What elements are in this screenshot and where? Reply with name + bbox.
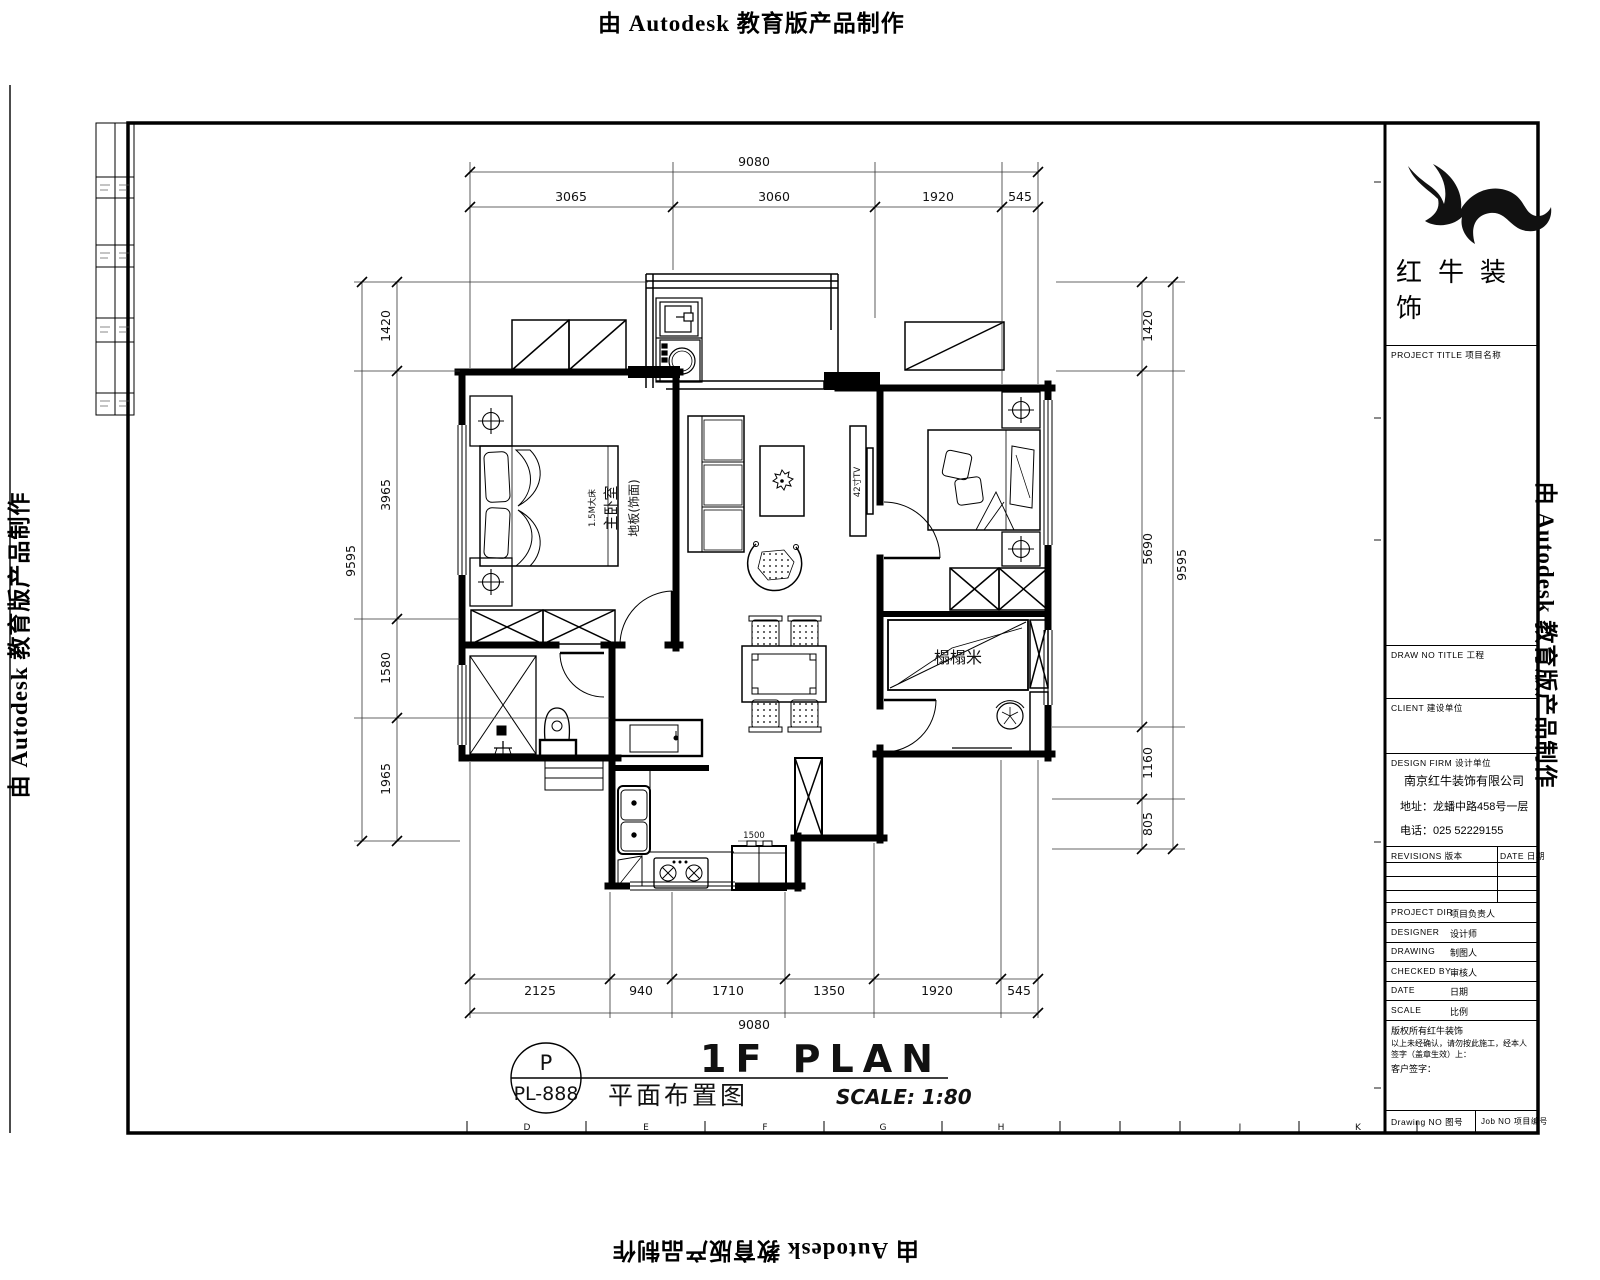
- copyright-note-2: 以上未经确认，请勿按此施工，经本人签字（盖章生效）上：: [1391, 1038, 1533, 1060]
- section-design-firm: DESIGN FIRM 设计单位: [1391, 757, 1491, 769]
- field-drawing-value: 制图人: [1450, 946, 1477, 959]
- field-date-label: DATE: [1391, 985, 1415, 995]
- svg-text:3060: 3060: [758, 189, 790, 204]
- svg-text:1160: 1160: [1140, 747, 1155, 779]
- cad-sheet: 由 Autodesk 教育版产品制作 由 Autodesk 教育版产品制作 由 …: [0, 0, 1600, 1280]
- dim-bottom-total: 9080: [738, 1017, 770, 1032]
- dim-right-total: 9595: [1174, 549, 1189, 581]
- date-header: DATE 日期: [1500, 850, 1545, 862]
- revisions-header: REVISIONS 版本: [1391, 850, 1463, 862]
- living-room: [688, 416, 873, 591]
- drawing-title-cn: 平面布置图: [608, 1081, 748, 1110]
- label-master-floor: 地板(饰面): [627, 479, 641, 536]
- field-checked-value: 审核人: [1450, 966, 1477, 979]
- svg-text:J: J: [1238, 1123, 1242, 1133]
- svg-text:1920: 1920: [921, 983, 953, 998]
- field-project-dir-value: 项目负责人: [1450, 907, 1495, 920]
- drawing-title-en: 1F PLAN: [700, 1037, 942, 1081]
- svg-text:E: E: [643, 1123, 649, 1133]
- svg-text:1710: 1710: [712, 983, 744, 998]
- field-project-dir-label: PROJECT DIR: [1391, 907, 1453, 917]
- brand-name: 红牛装饰: [1396, 255, 1538, 327]
- svg-text:2125: 2125: [524, 983, 556, 998]
- field-checked-label: CHECKED BY: [1391, 966, 1451, 976]
- label-master-bed: 1.5M大床: [587, 489, 598, 527]
- svg-text:5690: 5690: [1140, 533, 1155, 565]
- svg-text:3965: 3965: [378, 479, 393, 511]
- tatami-room: [888, 620, 1028, 729]
- svg-text:H: H: [998, 1123, 1005, 1133]
- svg-text:3065: 3065: [555, 189, 587, 204]
- stamp-number: PL-888: [514, 1083, 579, 1105]
- dim-left-total: 9595: [343, 545, 358, 577]
- dining-set: [742, 616, 826, 732]
- field-designer-label: DESIGNER: [1391, 927, 1439, 937]
- svg-text:1420: 1420: [378, 310, 393, 342]
- floor-plan-drawing: 9080 3065 3060 1920 545 2125 940 1710 13…: [0, 0, 1600, 1280]
- section-project-title: PROJECT TITLE 项目名称: [1391, 349, 1501, 361]
- field-designer-value: 设计师: [1450, 927, 1477, 940]
- svg-text:1580: 1580: [378, 652, 393, 684]
- field-scale-value: 比例: [1450, 1005, 1468, 1018]
- stamp-letter: P: [540, 1051, 553, 1075]
- svg-text:G: G: [880, 1123, 887, 1133]
- footer-drawing-no: Drawing NO 图号: [1391, 1116, 1463, 1128]
- company-address: 地址：龙蟠中路458号一层: [1400, 798, 1528, 814]
- svg-text:545: 545: [1008, 189, 1032, 204]
- footer-job-no: Job NO 项目编号: [1481, 1116, 1548, 1127]
- svg-text:805: 805: [1140, 812, 1155, 836]
- client-signature-label: 客户签字：: [1391, 1064, 1533, 1075]
- field-scale-label: SCALE: [1391, 1005, 1421, 1015]
- second-bedroom: [928, 392, 1040, 566]
- svg-text:1920: 1920: [922, 189, 954, 204]
- label-counter-dim: 1500: [743, 831, 765, 841]
- company-name: 南京红牛装饰有限公司: [1404, 772, 1524, 789]
- rednull-logo-icon: [1408, 164, 1551, 244]
- svg-text:1420: 1420: [1140, 310, 1155, 342]
- svg-text:F: F: [762, 1123, 767, 1133]
- label-tatami: 榻榻米: [934, 648, 982, 667]
- svg-text:940: 940: [629, 983, 653, 998]
- copyright-note-1: 版权所有红牛装饰: [1391, 1026, 1533, 1037]
- company-phone: 电话：025 52229155: [1400, 822, 1503, 838]
- dim-top-total: 9080: [738, 154, 770, 169]
- section-client: CLIENT 建设单位: [1391, 702, 1463, 714]
- grid-letters: D E F G H J K: [467, 1121, 1417, 1133]
- svg-text:D: D: [524, 1123, 531, 1133]
- title-stamp: P PL-888 平面布置图 1F PLAN SCALE: 1:80: [511, 1037, 972, 1113]
- section-drawing-title: DRAW NO TITLE 工程: [1391, 649, 1484, 661]
- label-master-bedroom: 主卧室: [602, 485, 620, 530]
- kitchen: [618, 770, 786, 890]
- svg-text:1965: 1965: [378, 763, 393, 795]
- label-tv: 42寸TV: [852, 467, 863, 498]
- field-date-value: 日期: [1450, 985, 1468, 998]
- drawing-scale: SCALE: 1:80: [836, 1085, 972, 1109]
- svg-text:1350: 1350: [813, 983, 845, 998]
- svg-text:545: 545: [1007, 983, 1031, 998]
- field-drawing-label: DRAWING: [1391, 946, 1435, 956]
